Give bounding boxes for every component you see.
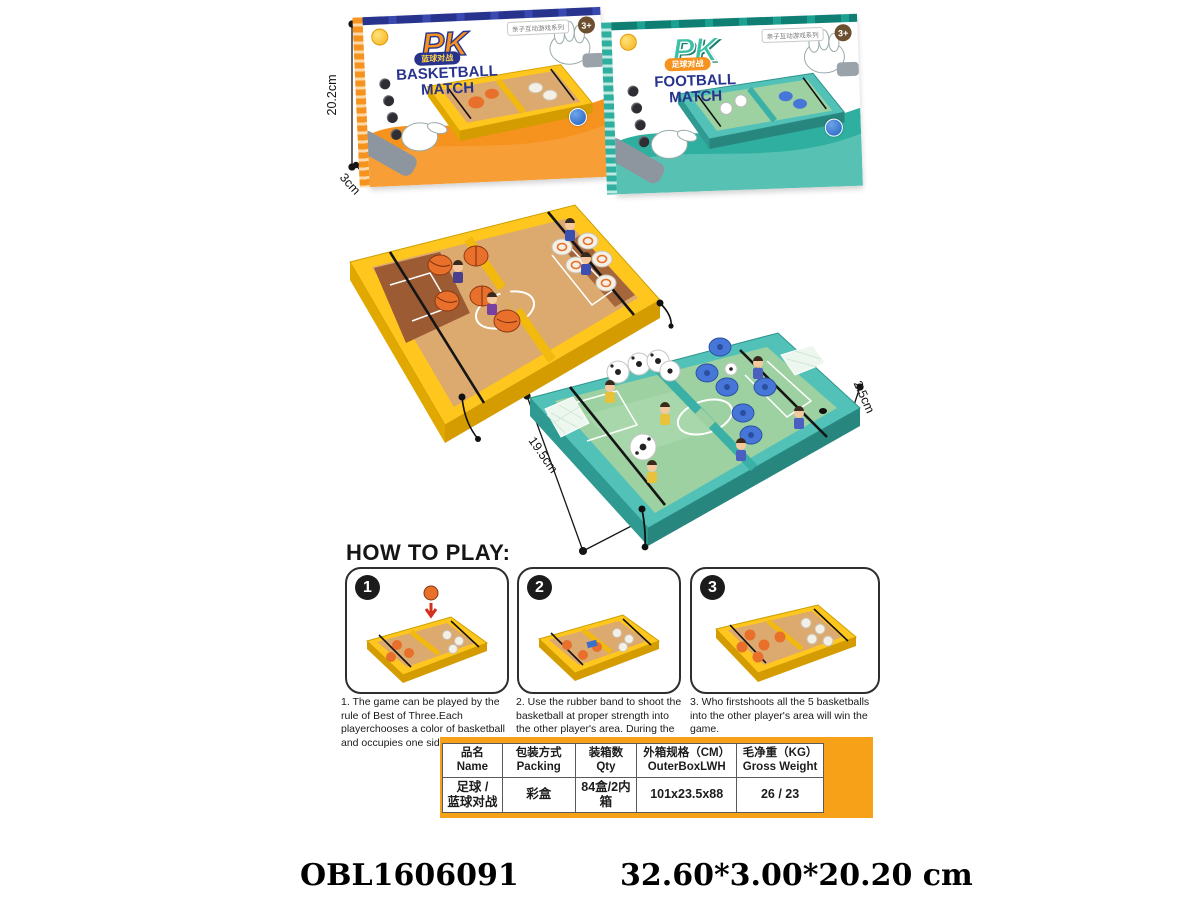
step-card-3: 3 — [690, 567, 880, 694]
col-qty: 装箱数 Qty — [575, 744, 637, 778]
step-text-3: 3. Who firstshoots all the 5 basketballs… — [690, 696, 882, 737]
product-size: 32.60*3.00*20.20 cm — [620, 858, 973, 893]
step2-illustration — [527, 583, 671, 687]
col-outerbox: 外箱规格（CM） OuterBoxLWH — [637, 744, 737, 778]
how-to-play-heading: HOW TO PLAY: — [346, 540, 511, 566]
step3-illustration — [702, 579, 868, 687]
step-card-1: 1 — [345, 567, 509, 694]
col-gross-weight: 毛净重（KG） Gross Weight — [737, 744, 824, 778]
football-series-badge: 亲子互动游戏系列 — [761, 27, 823, 43]
product-code: OBL1606091 — [300, 858, 519, 893]
value-outerbox: 101x23.5x88 — [637, 777, 737, 812]
basketball-title-line2: MATCH — [421, 79, 475, 98]
box-height-label: 20.2cm — [325, 65, 339, 125]
football-title-line2: MATCH — [669, 87, 723, 106]
football-box: PK 足球对战 FOOTBALL MATCH 亲子互动游戏系列 3+ — [611, 14, 863, 194]
spec-table: 品名 Name 包装方式 Packing 装箱数 Qty 外箱规格（CM） Ou… — [442, 743, 824, 813]
football-title: FOOTBALL MATCH — [633, 71, 758, 107]
football-board — [515, 325, 895, 560]
col-packing: 包装方式 Packing — [502, 744, 575, 778]
col-name: 品名 Name — [443, 744, 503, 778]
product-sheet: 20.2cm 3cm 32.6cm 19.5cm 32cm 2.5cm — [0, 0, 1200, 900]
value-packing: 彩盒 — [502, 777, 575, 812]
basketball-series-badge: 亲子互动游戏系列 — [507, 19, 570, 36]
spec-value-row: 足球 / 蓝球对战 彩盒 84盒/2内箱 101x23.5x88 26 / 23 — [443, 777, 824, 812]
value-name: 足球 / 蓝球对战 — [443, 777, 503, 812]
step-card-2: 2 — [517, 567, 681, 694]
spec-header-row: 品名 Name 包装方式 Packing 装箱数 Qty 外箱规格（CM） Ou… — [443, 744, 824, 778]
value-qty: 84盒/2内箱 — [575, 777, 637, 812]
basketball-box: PK 蓝球对战 BASKETBALL MATCH 亲子互动游戏系列 3+ — [362, 7, 607, 187]
value-gross-weight: 26 / 23 — [737, 777, 824, 812]
football-pk-banner: 足球对战 — [664, 57, 710, 72]
step1-illustration — [355, 583, 499, 687]
basketball-title: BASKETBALL MATCH — [381, 63, 514, 100]
